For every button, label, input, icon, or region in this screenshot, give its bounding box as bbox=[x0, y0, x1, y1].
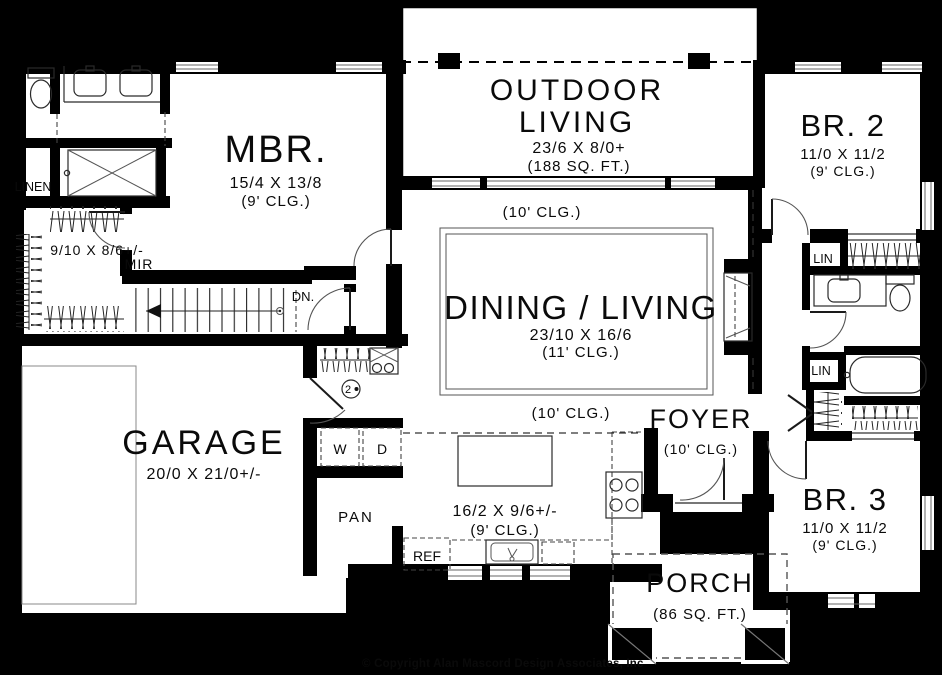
label-pan: PAN bbox=[338, 509, 374, 526]
label-foyer: FOYER bbox=[649, 404, 752, 434]
stairs bbox=[132, 288, 296, 332]
label-dining-living: DINING / LIVING bbox=[444, 289, 718, 326]
label-porch-area: (86 SQ. FT.) bbox=[653, 606, 747, 623]
label-outdoor-living-dims: 23/6 X 8/0+ bbox=[532, 140, 625, 157]
label-foyer-clg: (10' CLG.) bbox=[664, 441, 738, 457]
label-br2-dims: 11/0 X 11/2 bbox=[800, 146, 886, 163]
label-kitchen-clg: (9' CLG.) bbox=[470, 522, 539, 539]
label-br2: BR. 2 bbox=[800, 108, 885, 143]
label-garage: GARAGE bbox=[122, 424, 285, 462]
label-lin-lower: LIN bbox=[811, 364, 830, 378]
label-outdoor-living-1: OUTDOOR bbox=[490, 74, 664, 107]
label-ref: REF bbox=[413, 548, 441, 564]
copyright-text: © Copyright Alan Mascord Design Associat… bbox=[362, 658, 644, 670]
label-mbr-dims: 15/4 X 13/8 bbox=[230, 175, 323, 192]
label-br3-clg: (9' CLG.) bbox=[812, 537, 877, 553]
label-outdoor-living-2: LIVING bbox=[519, 106, 635, 139]
label-mbr-clg: (9' CLG.) bbox=[241, 193, 310, 210]
label-dryer: D bbox=[377, 441, 387, 457]
label-garage-dims: 20/0 X 21/0+/- bbox=[147, 466, 262, 483]
label-dining-clg-north: (10' CLG.) bbox=[503, 204, 582, 221]
label-br2-clg: (9' CLG.) bbox=[810, 163, 875, 179]
label-keynote: 2 bbox=[345, 384, 351, 396]
floor-plan: OUTDOOR LIVING 23/6 X 8/0+ (188 SQ. FT.)… bbox=[0, 0, 942, 675]
label-washer: W bbox=[333, 441, 347, 457]
label-dining-clg-south: (10' CLG.) bbox=[532, 405, 611, 422]
label-lin-upper: LIN bbox=[813, 252, 832, 266]
label-dining-clg: (11' CLG.) bbox=[542, 344, 620, 361]
label-dining-dims: 23/10 X 16/6 bbox=[530, 327, 633, 344]
label-porch: PORCH bbox=[646, 568, 754, 598]
label-dn: DN. bbox=[292, 289, 314, 304]
label-br3-dims: 11/0 X 11/2 bbox=[802, 520, 888, 537]
label-br3: BR. 3 bbox=[802, 482, 887, 517]
label-master-closet-mir: MIR bbox=[125, 256, 154, 272]
porch-post-right bbox=[741, 624, 789, 664]
label-outdoor-living-area: (188 SQ. FT.) bbox=[527, 158, 630, 175]
label-kitchen-dims: 16/2 X 9/6+/- bbox=[452, 503, 557, 520]
label-linen: LINEN bbox=[15, 180, 52, 194]
label-mbr: MBR. bbox=[225, 129, 328, 171]
